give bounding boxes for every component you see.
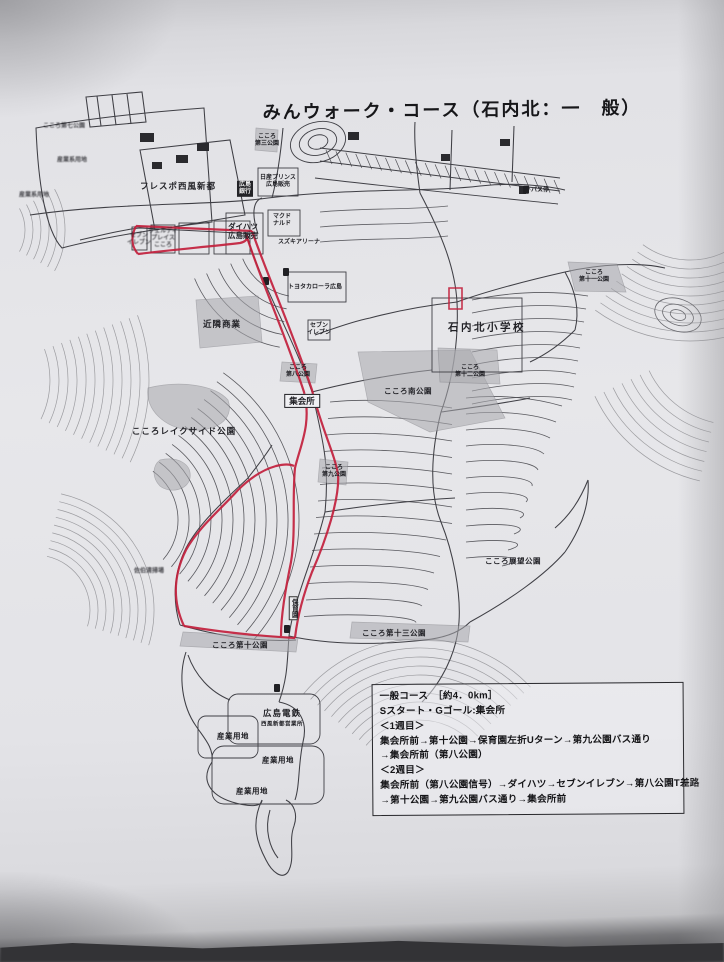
street-line [475,170,481,184]
road [207,762,262,806]
contour-line [65,340,77,431]
street-line [466,476,532,486]
map-block [268,210,300,236]
contour-line [55,189,65,271]
street-line [308,582,428,590]
contour-line [649,371,713,423]
building-black [152,162,162,169]
street-line [326,433,452,441]
street-line [466,524,520,534]
street-line [316,516,452,524]
contour-line [640,375,711,432]
street-line [306,598,422,606]
street-line [554,180,560,194]
contour-line [27,205,33,256]
street-line [466,556,515,566]
contour-line [631,379,709,442]
road [565,480,588,552]
park-kokoro-11 [568,262,626,292]
map-block [308,320,330,340]
contour-line [643,245,724,260]
street-line [465,168,471,182]
road [457,265,665,302]
building-black [140,133,154,142]
course-route-line [138,236,247,254]
street-line [304,615,416,623]
road [470,552,565,622]
course-info-line: →第十公園→第九公園バス通り→集会所前 [380,792,676,809]
building-black [500,139,510,146]
road [512,126,514,182]
bus-stop-icon [283,268,289,276]
street-line [217,382,288,632]
contour-line [41,349,50,419]
park-lakeside [148,384,230,430]
contour-line [606,296,724,323]
road [256,800,296,875]
street-line [472,306,586,313]
road [555,480,588,528]
course-map-canvas [0,0,724,962]
building-black [176,155,188,163]
street-line [466,508,524,518]
building-black [348,132,359,140]
road [36,108,212,248]
contour-line [56,517,130,638]
contour-line [604,392,702,471]
street-line [466,444,544,454]
park-kokoro-13-bar [350,622,470,642]
street-line [466,492,527,502]
contour-line [595,396,700,481]
street-line [544,179,550,193]
street-line [312,549,440,557]
contour-line [34,201,41,259]
street-line [320,236,448,242]
map-block [288,272,346,302]
street-line [485,171,491,185]
contour-line [90,331,104,443]
zone-kinrin [196,296,262,348]
contour-line [611,288,724,314]
course-info-lines: 一般コース ［約4．0km］Sスタート・Gゴール:集会所＜1週目＞集会所前→第十… [380,688,677,809]
road [450,130,452,190]
building-black [197,143,209,151]
contour-line [601,303,724,332]
park-kokoro-3 [255,128,278,152]
contour-line [20,208,26,251]
bus-stop-icon [284,625,290,633]
road [254,198,262,234]
contour-line [47,556,90,626]
contour-line [49,549,98,629]
course-info-box: 一般コース ［約4．0km］Sスタート・Gゴール:集会所＜1週目＞集会所前→第十… [372,682,685,816]
road [279,702,304,800]
street-line [466,460,538,470]
road [127,94,131,124]
road [112,95,116,125]
contour-line [613,388,704,462]
street-line [320,221,448,227]
page-title: みんウォーク・コース（石内北：一 般） [262,94,641,125]
contour-line [638,252,724,269]
contour-line [74,337,87,435]
hill-contour [660,300,697,330]
course-info-line: 集会所前→第十公園→保育園左折Uターン→第九公園バス通り [380,733,676,750]
contour-line [622,274,724,296]
bus-stop-icon [274,684,280,692]
hill-contour [296,125,339,160]
road [97,96,101,126]
map-block [228,694,320,744]
street-line [318,499,452,507]
street-line [310,565,434,573]
road [188,655,230,700]
street-line [504,173,510,187]
road [315,302,457,335]
map-block [258,168,298,196]
road [415,122,420,193]
street-line [472,332,582,339]
street-line [466,428,550,438]
road [182,652,212,762]
contour-line [82,334,95,439]
road [268,810,278,858]
map-block [212,746,324,804]
street-line [314,532,446,540]
street-line [534,177,540,191]
building-black [519,186,526,194]
street-line [455,167,461,181]
contour-line [114,321,131,454]
building-black [441,154,450,161]
park-kokoro-12 [438,348,500,384]
street-line [472,319,584,326]
contour-line [61,494,154,645]
map-block [214,221,250,254]
hill-contour [650,292,706,338]
park-kokoro-9 [318,459,348,485]
road [320,148,560,178]
park-lakeside-2 [154,459,190,490]
road [140,140,245,230]
contour-line [595,310,724,341]
street-line [198,409,255,611]
photo-of-walking-course-map: みんウォーク・コース（石内北：一 般） こころ第七公園産業系用地産業系用地フレス… [0,0,724,962]
street-line [466,540,518,550]
contour-line [49,346,59,423]
contour-line [58,510,138,641]
street-line [472,293,588,300]
course-info-line: 集会所前（第八公園信号）→ダイハツ→セブンイレブン→第八公園T差路 [380,777,676,794]
hill-contour [669,308,687,323]
